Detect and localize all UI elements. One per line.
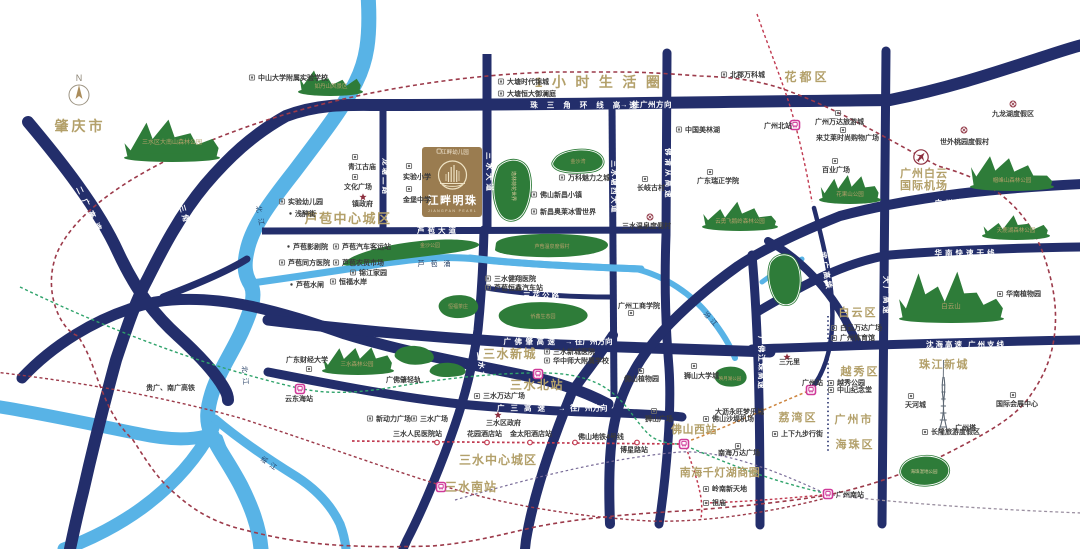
svg-text:如丹山风景区: 如丹山风景区 (314, 82, 348, 90)
svg-text:大塘恒大御澜庭: 大塘恒大御澜庭 (507, 89, 557, 98)
svg-text:逸林荷花世界: 逸林荷花世界 (510, 171, 517, 201)
svg-text:来艾莱时尚购物广场: 来艾莱时尚购物广场 (815, 133, 879, 142)
svg-text:青江古庙: 青江古庙 (348, 162, 376, 171)
svg-text:大沥永旺梦乐城: 大沥永旺梦乐城 (715, 407, 764, 416)
svg-text:白云山: 白云山 (941, 301, 961, 310)
svg-text:珠三角环线高速: 珠三角环线高速 (530, 100, 646, 110)
svg-text:浅醉街: 浅醉街 (295, 209, 316, 218)
svg-text:佛山西站: 佛山西站 (670, 422, 717, 436)
svg-text:狮山大学城: 狮山大学城 (683, 371, 719, 380)
svg-text:恒福茶庄: 恒福茶庄 (448, 303, 468, 310)
svg-text:芦苞中心城区: 芦苞中心城区 (304, 211, 391, 226)
svg-text:广东财经大学: 广东财经大学 (286, 355, 328, 364)
svg-text:金沙公园: 金沙公园 (420, 242, 440, 249)
svg-text:华南快速干线: 华南快速干线 (935, 248, 998, 258)
svg-text:白云万达广场: 白云万达广场 (840, 323, 882, 332)
svg-text:三水广场: 三水广场 (420, 414, 448, 423)
svg-text:三水万达广场: 三水万达广场 (483, 391, 525, 400)
svg-text:世外桃园度假村: 世外桃园度假村 (940, 137, 989, 146)
svg-text:广佛肇高速: 广佛肇高速 (504, 336, 559, 346)
svg-text:中国美林湖: 中国美林湖 (685, 125, 720, 134)
svg-text:广州体育馆: 广州体育馆 (840, 333, 875, 342)
svg-text:往广州方向: 往广州方向 (632, 99, 672, 109)
svg-text:→: → (620, 100, 628, 109)
svg-text:三水塘西大道: 三水塘西大道 (610, 160, 620, 214)
svg-text:龙塘二路: 龙塘二路 (381, 158, 391, 196)
svg-text:三水温泉度假村: 三水温泉度假村 (622, 221, 671, 230)
svg-text:→: → (565, 337, 573, 346)
svg-text:侨鑫生态园: 侨鑫生态园 (530, 313, 555, 320)
svg-text:上下九步行街: 上下九步行街 (781, 429, 823, 438)
svg-text:广州绕城高速: 广州绕城高速 (935, 198, 998, 208)
svg-text:芦苞汽车客运站: 芦苞汽车客运站 (342, 242, 391, 251)
svg-text:祖庙: 祖庙 (711, 498, 726, 507)
svg-text:文化广场: 文化广场 (344, 182, 372, 191)
svg-text:百业广场: 百业广场 (822, 165, 850, 174)
svg-text:大广高速: 大广高速 (882, 276, 892, 316)
svg-text:万科魅力之城: 万科魅力之城 (567, 173, 610, 182)
svg-text:南海万达广场: 南海万达广场 (718, 448, 760, 457)
svg-text:江畔明珠: 江畔明珠 (428, 193, 478, 207)
svg-text:芦苞农贸市场: 芦苞农贸市场 (342, 258, 384, 267)
svg-text:三水中心城区: 三水中心城区 (459, 452, 537, 467)
svg-text:广三高速: 广三高速 (497, 403, 551, 413)
svg-text:天鹿湖森林公园: 天鹿湖森林公园 (997, 226, 1036, 234)
svg-text:三水森林公园: 三水森林公园 (340, 360, 374, 368)
svg-text:JIANGPAN PEARL: JIANGPAN PEARL (428, 209, 477, 213)
svg-text:江畔幼儿园: 江畔幼儿园 (441, 148, 469, 156)
svg-text:三水南站: 三水南站 (445, 479, 497, 494)
svg-text:博星路站: 博星路站 (620, 445, 648, 454)
svg-text:佛山植物园: 佛山植物园 (623, 374, 659, 383)
svg-text:花果山公园: 花果山公园 (836, 190, 864, 198)
svg-text:金沙湾: 金沙湾 (570, 158, 585, 165)
svg-text:大塘时代锦城: 大塘时代锦城 (507, 77, 549, 86)
svg-text:广佛江珠高速: 广佛江珠高速 (757, 336, 767, 390)
svg-text:芦苞温泉度假村: 芦苞温泉度假村 (534, 243, 569, 250)
svg-text:云东海站: 云东海站 (285, 394, 313, 403)
svg-text:贵广、南广高铁: 贵广、南广高铁 (146, 383, 195, 392)
svg-text:佛清从高速: 佛清从高速 (664, 147, 674, 201)
svg-text:往广州方向: 往广州方向 (570, 403, 608, 413)
svg-text:北郡万科城: 北郡万科城 (730, 70, 765, 79)
svg-text:恒福水岸: 恒福水岸 (338, 277, 367, 286)
svg-text:镇政府: 镇政府 (352, 199, 373, 208)
svg-text:天河城: 天河城 (905, 400, 926, 409)
svg-text:新昌奥莱冰雪世界: 新昌奥莱冰雪世界 (540, 207, 597, 216)
svg-text:九龙湖度假区: 九龙湖度假区 (991, 109, 1034, 118)
svg-text:广州南站: 广州南站 (836, 490, 864, 499)
svg-text:新动力广场: 新动力广场 (376, 414, 411, 423)
svg-text:白云区: 白云区 (839, 305, 878, 319)
svg-text:肇庆市: 肇庆市 (55, 118, 106, 134)
svg-text:芦苞恒鑫汽车站: 芦苞恒鑫汽车站 (494, 283, 543, 292)
svg-text:花园酒店站: 花园酒店站 (467, 429, 502, 438)
svg-text:荔湾区: 荔湾区 (778, 410, 818, 424)
svg-text:国际机场: 国际机场 (900, 178, 948, 192)
svg-text:实验小学: 实验小学 (403, 172, 431, 181)
svg-text:三水大道: 三水大道 (485, 152, 495, 194)
svg-text:三水区政府: 三水区政府 (486, 418, 521, 427)
svg-text:实验幼儿园: 实验幼儿园 (288, 197, 323, 206)
svg-text:三水人民医院站: 三水人民医院站 (393, 429, 442, 438)
svg-text:南海千灯湖商圈: 南海千灯湖商圈 (680, 465, 761, 479)
svg-text:广州万达旅游城: 广州万达旅游城 (815, 117, 864, 126)
svg-text:珠江新城: 珠江新城 (919, 357, 969, 371)
svg-text:花都区: 花都区 (784, 69, 829, 84)
svg-text:中山纪念堂: 中山纪念堂 (837, 385, 872, 394)
svg-text:海珠区: 海珠区 (836, 437, 875, 451)
svg-text:金太阳酒店站: 金太阳酒店站 (509, 429, 552, 438)
svg-text:国际会展中心: 国际会展中心 (996, 399, 1038, 408)
svg-text:芦苞同方医院: 芦苞同方医院 (288, 258, 330, 267)
svg-text:广佛肇轻轨: 广佛肇轻轨 (386, 375, 421, 384)
svg-text:三水新城: 三水新城 (483, 346, 537, 361)
svg-text:广东瑞正学院: 广东瑞正学院 (697, 176, 739, 185)
svg-text:金堡中学: 金堡中学 (402, 195, 431, 204)
svg-text:广州白云: 广州白云 (900, 166, 948, 180)
svg-text:映月湖公园: 映月湖公园 (719, 375, 742, 382)
svg-text:三元里: 三元里 (779, 357, 800, 366)
svg-text:帽峰山森林公园: 帽峰山森林公园 (993, 176, 1032, 184)
svg-text:1小时生活圈: 1小时生活圈 (535, 74, 670, 90)
svg-text:华南植物园: 华南植物园 (1006, 289, 1041, 298)
svg-text:越秀公园: 越秀公园 (836, 378, 865, 387)
svg-text:三水新城医院: 三水新城医院 (553, 347, 595, 356)
svg-text:三水健翔医院: 三水健翔医院 (494, 274, 536, 283)
svg-text:华中师大附属学校: 华中师大附属学校 (553, 356, 610, 365)
svg-text:三水北站: 三水北站 (510, 377, 564, 392)
svg-text:三水区大南山森林公园: 三水区大南山森林公园 (142, 138, 202, 146)
svg-text:佛山沙堤机场: 佛山沙堤机场 (711, 414, 754, 423)
svg-text:佛山地铁4号线: 佛山地铁4号线 (577, 432, 624, 441)
svg-text:沈海高速 广州支线: 沈海高速 广州支线 (926, 339, 1006, 349)
svg-text:广州工商学院: 广州工商学院 (618, 301, 660, 310)
svg-text:芦苞水闸: 芦苞水闸 (296, 280, 324, 289)
svg-text:芦苞涌: 芦苞涌 (418, 259, 457, 268)
svg-text:云勇飞鹅岭森林公园: 云勇飞鹅岭森林公园 (715, 217, 765, 225)
svg-text:广州北站: 广州北站 (764, 121, 792, 130)
svg-text:N: N (76, 73, 83, 83)
svg-text:广州市: 广州市 (835, 412, 874, 426)
svg-text:狮山广场: 狮山广场 (644, 414, 673, 423)
svg-text:芦苞影剧院: 芦苞影剧院 (293, 242, 328, 251)
svg-text:广州站: 广州站 (802, 378, 823, 387)
svg-text:→: → (558, 404, 566, 413)
svg-text:佛山新昌小镇: 佛山新昌小镇 (539, 190, 582, 199)
svg-text:海珠湿地公园: 海珠湿地公园 (911, 468, 938, 475)
svg-text:芦苞大道: 芦苞大道 (417, 225, 459, 235)
svg-text:长岐古村: 长岐古村 (637, 183, 665, 192)
svg-text:长隆旅游度假区: 长隆旅游度假区 (931, 427, 980, 436)
svg-text:锦江家园: 锦江家园 (359, 268, 387, 277)
svg-text:越秀区: 越秀区 (840, 364, 880, 378)
svg-text:往广州方向: 往广州方向 (575, 336, 613, 346)
svg-text:岭南新天地: 岭南新天地 (712, 484, 747, 493)
svg-text:中山大学附属实验学校: 中山大学附属实验学校 (258, 73, 329, 82)
